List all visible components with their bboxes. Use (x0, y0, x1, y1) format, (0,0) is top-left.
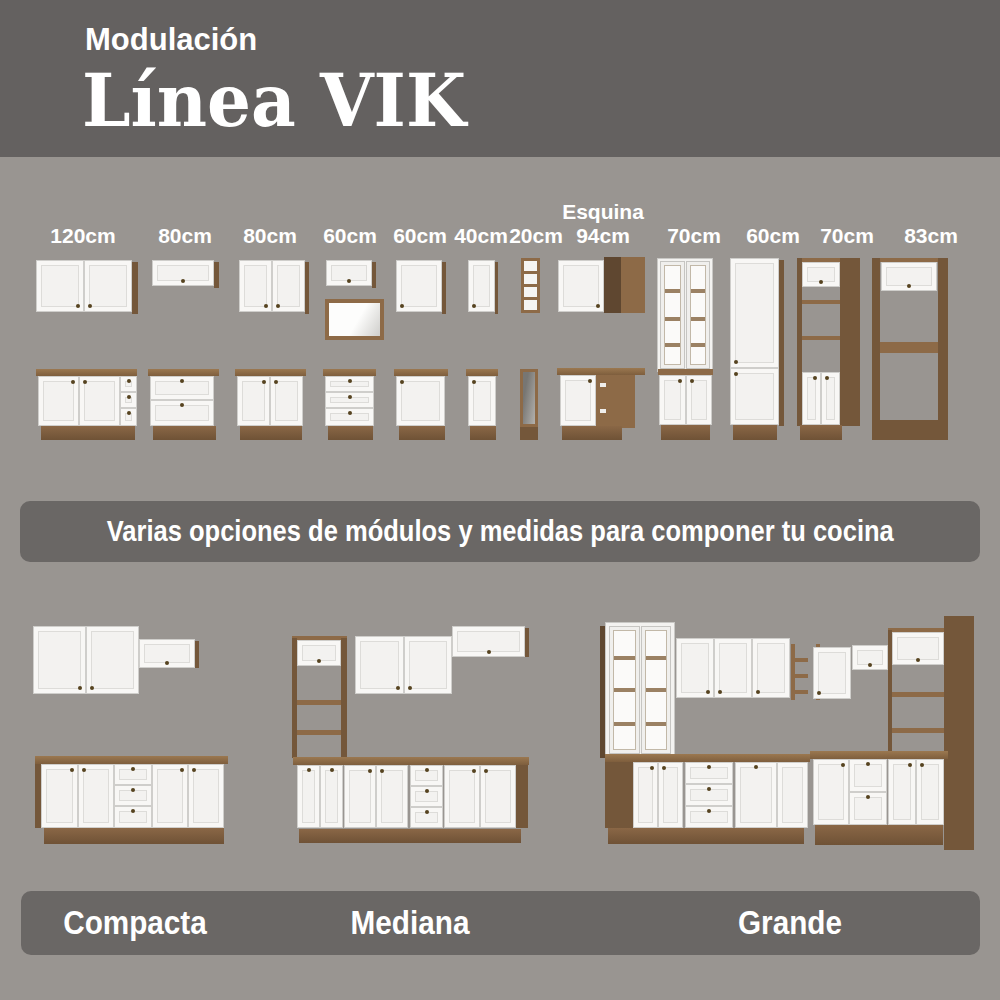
corner-countertop (557, 368, 645, 375)
wall-door (272, 260, 305, 312)
base-front (150, 400, 214, 426)
page-title: Línea VIK (82, 58, 466, 143)
module-label-esquina: Esquina 94cm (558, 198, 648, 248)
toe-kick (733, 425, 777, 440)
wall-flip-door (152, 260, 214, 286)
open-shelf-wall-unit (521, 258, 540, 313)
mediana-base-door (376, 765, 408, 828)
base-front (150, 376, 214, 400)
compacta-base-door (188, 764, 224, 828)
grande-base-door (735, 762, 777, 828)
module-label-70cm-a: 70cm (649, 198, 739, 248)
wall-flip-door (326, 260, 372, 286)
grande-corner-door (777, 762, 808, 828)
wood-side-panel (495, 262, 498, 314)
toe-kick (608, 828, 804, 844)
compacta-wall-flip-door (139, 639, 195, 668)
drawer (114, 764, 152, 785)
grande-tower-panel (944, 616, 974, 850)
corner-wood-panel (621, 257, 645, 313)
grande-wall-door (813, 647, 851, 699)
wood-side-panel (525, 628, 529, 657)
toe-kick (399, 426, 445, 440)
grande-wall-door (752, 638, 790, 698)
mediana-wall-door (404, 636, 452, 694)
countertop (323, 369, 376, 376)
base-door (802, 372, 821, 425)
wall-door (36, 260, 84, 312)
compacta-wall-door (33, 626, 86, 694)
countertop (466, 369, 498, 376)
grande-tower-flip-door (892, 632, 944, 665)
mediana-base-door (444, 765, 480, 828)
corner-fold-panel (596, 375, 635, 428)
wall-door (84, 260, 132, 312)
tower-side (840, 258, 860, 426)
mediana-base-door (480, 765, 516, 828)
drawer (120, 376, 137, 392)
drawer (849, 792, 887, 825)
module-label-120cm: 120cm (38, 198, 128, 248)
mediana-base-door (320, 765, 343, 828)
wood-side-panel (132, 262, 138, 314)
grande-wall-flip-door (852, 645, 888, 670)
mediana-wall-flip-door (452, 626, 525, 657)
drawer (120, 392, 137, 408)
tower-shelf (297, 730, 341, 735)
open-base-unit (520, 369, 538, 427)
grande-base-door (658, 762, 683, 828)
mediana-countertop (293, 757, 529, 765)
drawer (685, 762, 733, 784)
base-door (821, 372, 840, 425)
module-label-70cm-b: 70cm (802, 198, 892, 248)
open-niche (325, 299, 384, 340)
toe-kick (41, 426, 135, 440)
mediana-base-door (297, 765, 320, 828)
corner-base-door (560, 375, 596, 426)
glass-door (609, 626, 640, 754)
wood-side-panel (372, 262, 376, 288)
grande-countertop-left (605, 754, 810, 762)
base-door (686, 375, 712, 425)
countertop (148, 369, 219, 376)
module-label-83cm: 83cm (886, 198, 976, 248)
countertop (36, 369, 137, 376)
tall-door (730, 258, 779, 368)
base-door (396, 376, 445, 426)
countertop (235, 369, 306, 376)
frame-flip-door (881, 262, 937, 291)
tower-shelf (297, 700, 341, 705)
toe-kick (661, 425, 710, 440)
base-door (79, 376, 120, 426)
toe-kick (299, 829, 521, 843)
base-door (237, 376, 270, 426)
toe-kick (815, 825, 943, 845)
grande-base-door (633, 762, 658, 828)
compacta-base-door (152, 764, 188, 828)
wood-side-panel (214, 262, 219, 288)
grande-wall-door (676, 638, 714, 698)
drawer (685, 806, 733, 828)
drawer (325, 392, 374, 408)
toe-kick (800, 425, 842, 440)
grande-wall-door (714, 638, 752, 698)
tall-door (730, 368, 779, 425)
grande-base-door (916, 759, 944, 825)
toe-kick (562, 426, 622, 440)
compacta-countertop (35, 756, 228, 764)
infographic-root: Modulación Línea VIK 120cm 80cm 80cm 60c… (0, 0, 1000, 1000)
compacta-wall-door (86, 626, 139, 694)
base-door (468, 376, 496, 426)
glass-door (641, 626, 671, 754)
corner-wood-panel (604, 257, 621, 313)
grande-base-door (813, 759, 849, 825)
mediana-tower-side (341, 638, 347, 758)
mediana-wall-door (355, 636, 404, 694)
wood-side-panel (605, 762, 633, 828)
wood-side-panel (516, 765, 528, 828)
toe-kick (44, 828, 224, 844)
wall-door (396, 260, 442, 312)
module-label-80cm-b: 80cm (225, 198, 315, 248)
wall-door (468, 260, 495, 312)
grande-countertop-right (810, 751, 948, 759)
mediana-base-door (344, 765, 376, 828)
drawer (325, 376, 374, 392)
corner-wall-door (558, 260, 604, 312)
toe-kick (240, 426, 302, 440)
kitchen-label-mediana: Mediana (320, 891, 500, 955)
header-eyebrow: Modulación (85, 22, 257, 58)
drawer (410, 765, 443, 786)
bottom-banner: Compacta Mediana Grande (21, 891, 980, 955)
glass-door (660, 261, 685, 369)
frame-side (938, 258, 948, 440)
drawer (685, 784, 733, 806)
wall-door (239, 260, 272, 312)
frame-crossbar (880, 342, 938, 353)
drawer (114, 806, 152, 828)
base-door (270, 376, 303, 426)
base-door (659, 375, 686, 425)
tower-shelf (892, 728, 944, 733)
drawer (410, 807, 443, 828)
tower-shelf (802, 336, 840, 340)
toe-kick (328, 426, 373, 440)
middle-banner: Varias opciones de módulos y medidas par… (20, 501, 980, 562)
drawer (325, 408, 374, 426)
toe-kick (470, 426, 496, 440)
kitchen-label-grande: Grande (700, 891, 880, 955)
drawer (849, 759, 887, 792)
frame-side (872, 258, 880, 440)
kitchen-label-compacta: Compacta (45, 891, 225, 955)
tower-shelf (802, 300, 840, 304)
toe-kick (153, 426, 216, 440)
middle-banner-text: Varias opciones de módulos y medidas par… (106, 515, 893, 548)
wood-side-panel (195, 641, 199, 668)
drawer (410, 786, 443, 807)
module-label-80cm-a: 80cm (140, 198, 230, 248)
drawer (114, 785, 152, 806)
grande-base-door (888, 759, 916, 825)
drawer (120, 408, 137, 426)
glass-door (686, 261, 710, 369)
header: Modulación Línea VIK (0, 0, 1000, 157)
mediana-tower-flip-door (297, 640, 341, 666)
tower-shelf (892, 692, 944, 697)
frame-base (880, 420, 938, 440)
tower-flip-door (802, 262, 840, 287)
compacta-base-door (78, 764, 114, 828)
base-plinth (520, 427, 538, 440)
countertop (394, 369, 448, 376)
compacta-base-door (41, 764, 78, 828)
wood-side-panel (779, 260, 784, 426)
base-door (38, 376, 79, 426)
wood-side-panel (442, 262, 446, 314)
wood-side-panel (305, 262, 309, 314)
